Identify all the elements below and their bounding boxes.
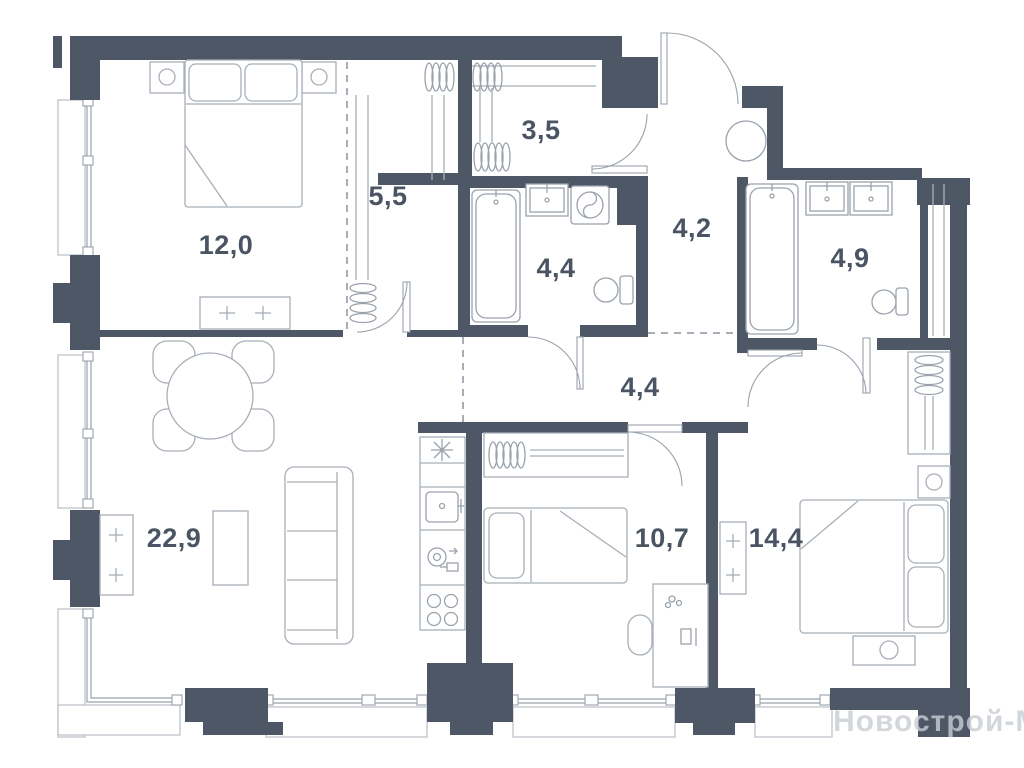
kitchen-units xyxy=(420,437,465,630)
floor-plan-drawing: 12,0 5,5 3,5 4,4 4,2 4,9 4,4 22,9 10,7 1… xyxy=(0,0,1024,768)
bathroom-2-fixtures xyxy=(746,182,908,334)
coffee-table xyxy=(213,511,248,585)
toilet xyxy=(872,290,896,314)
desk-chair xyxy=(628,615,652,655)
room-label-hallway: 4,4 xyxy=(620,372,659,402)
floor-plan-page: 12,0 5,5 3,5 4,4 4,2 4,9 4,4 22,9 10,7 1… xyxy=(0,0,1024,768)
entry-hall-fixtures xyxy=(726,121,766,161)
furniture-bedroom-1 xyxy=(150,60,336,329)
room-label-storage: 3,5 xyxy=(521,115,560,145)
furniture-bedroom-2 xyxy=(484,433,708,687)
furniture-bedroom-3 xyxy=(720,352,950,665)
room-label-entry-hall: 4,2 xyxy=(672,213,711,243)
ventilation-shaft xyxy=(933,184,944,336)
toilet xyxy=(594,278,618,302)
watermark: Новострой-М xyxy=(833,705,1024,738)
sofa xyxy=(285,467,353,644)
bathtub xyxy=(472,190,520,322)
wardrobe xyxy=(484,433,628,477)
entry-door-leaf xyxy=(661,33,667,104)
radiator xyxy=(100,515,133,595)
radiator xyxy=(720,522,746,594)
vent-icon xyxy=(431,439,453,461)
room-label-bedroom-3: 14,4 xyxy=(749,523,804,553)
room-label-wardrobe: 5,5 xyxy=(368,181,407,211)
room-label-bathroom-2: 4,9 xyxy=(830,243,869,273)
dresser xyxy=(200,297,290,329)
room-label-bathroom-1: 4,4 xyxy=(536,253,575,283)
dining-table xyxy=(167,353,253,439)
furniture-living-room xyxy=(100,341,353,644)
room-label-bedroom-1: 12,0 xyxy=(199,230,254,260)
room-label-bedroom-2: 10,7 xyxy=(635,523,690,553)
room-label-living-kitchen: 22,9 xyxy=(147,523,202,553)
wardrobe xyxy=(908,352,950,454)
bathtub xyxy=(746,184,798,334)
